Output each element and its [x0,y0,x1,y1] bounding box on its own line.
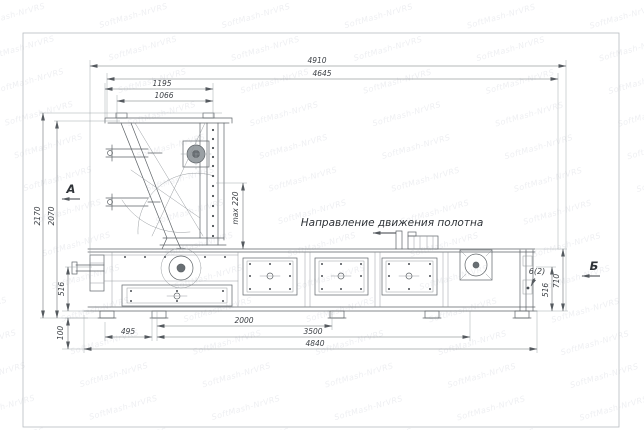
sheet-frame [23,33,619,427]
access-panel-1 [243,258,297,295]
drawing-sheet: SoftMash-NrVRS SoftMash-NrVRS SoftMash-N… [0,0,644,430]
dimension-extensions [40,60,568,353]
access-panel-2 [315,258,368,295]
dim-bottom-495: 495 [121,327,136,336]
dim-bottom-3500: 3500 [303,327,322,336]
dim-left-foot-height: 100 [56,326,65,341]
dim-bottom-overall: 4840 [305,339,324,348]
dim-height-inner: 2070 [47,206,56,225]
conveyor-right-end [520,250,533,311]
dim-left-belt-height: 516 [57,282,66,297]
dim-bottom-2000: 2000 [234,316,253,325]
technical-drawing: 4910 4645 1195 1066 2170 2070 max 220 51… [0,0,644,430]
dim-height-overall: 2170 [33,206,42,225]
dim-right-belt-height: 516 [541,283,550,298]
access-panel-3 [382,258,437,295]
view-label-a: А [66,182,76,196]
dimension-lines [43,66,566,349]
dim-right-end-height: 710 [552,274,561,289]
flange-bolts [212,129,214,237]
mixer-unit [105,113,232,249]
dim-max-clearance: max 220 [231,191,240,224]
dim-top-overall: 4910 [307,56,326,65]
bolt-callout-label: 6(2) [529,267,545,276]
conveyor-unit [72,231,537,318]
view-label-b: Б [590,259,599,273]
access-panel-left [122,285,232,306]
dim-hopper-inner: 1066 [154,91,173,100]
fan-unit [460,250,492,280]
dim-hopper-outer: 1195 [152,79,171,88]
machine-feet [98,311,531,318]
dim-top-inner: 4645 [312,69,331,78]
direction-note: Направление движения полотна [301,217,484,229]
